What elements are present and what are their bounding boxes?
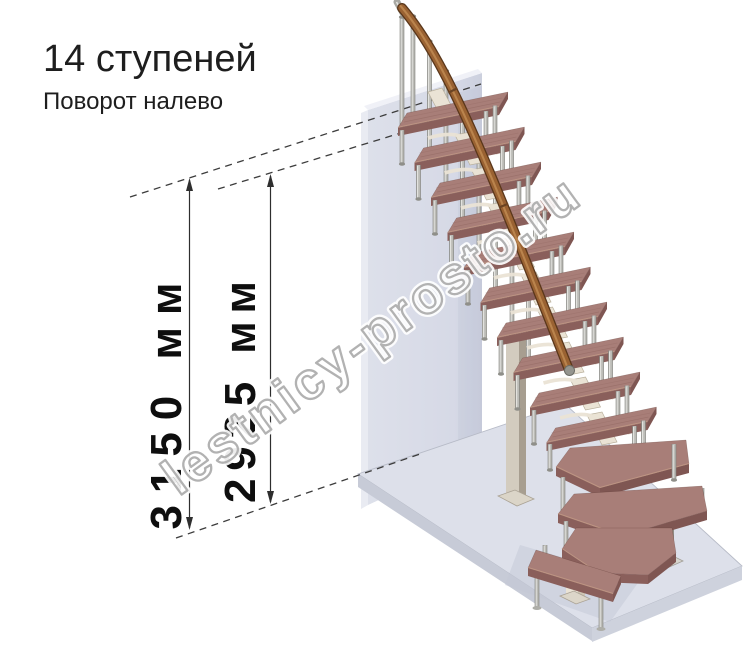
rod-collar: [547, 468, 553, 472]
leg-foot: [533, 606, 542, 610]
dimension-arrowhead: [186, 178, 193, 191]
dimension-arrowhead: [267, 491, 274, 504]
rod-collar: [498, 372, 504, 376]
central-column: [506, 338, 519, 499]
rod-collar: [432, 232, 438, 236]
leg-foot: [597, 627, 606, 631]
rod-collar: [415, 197, 421, 201]
stair-diagram-page: 3150 мм 2925 мм lestnicy-prosto.ru lestn…: [0, 0, 743, 655]
spine-arm: [544, 379, 576, 383]
rail-end-cap: [565, 366, 575, 376]
page-subtitle: Поворот налево: [43, 88, 223, 115]
rod-collar: [481, 337, 487, 341]
header: 14 ступеней Поворот налево: [43, 38, 257, 115]
rod-collar: [514, 407, 520, 411]
rod-collar: [671, 478, 677, 482]
rod-collar: [531, 442, 537, 446]
rod-collar: [399, 162, 405, 166]
staircase-diagram: 3150 мм 2925 мм lestnicy-prosto.ru lestn…: [0, 0, 743, 655]
dimension-arrowhead: [267, 174, 274, 187]
page-title: 14 ступеней: [43, 38, 257, 80]
